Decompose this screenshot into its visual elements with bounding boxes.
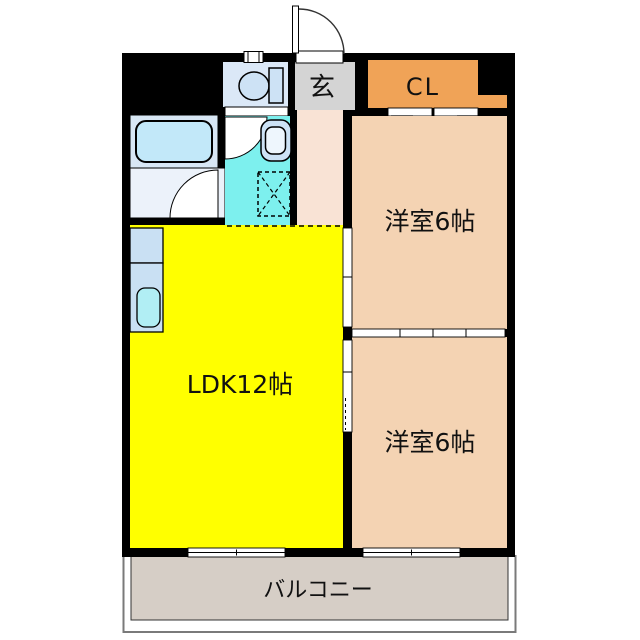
toilet-tank-icon — [269, 68, 283, 103]
balcony-label: バルコニー — [263, 578, 373, 603]
sliding-door-icon — [352, 329, 505, 337]
sliding-door-icon — [343, 340, 352, 432]
entrance-door-swing-arc — [299, 9, 344, 54]
ldk-label: LDK12帖 — [187, 370, 293, 399]
floor-plan-svg: 玄 CL 洋室6帖 洋室6帖 LDK12帖 バルコニー — [0, 0, 640, 640]
bedroom-lower-label: 洋室6帖 — [385, 428, 476, 457]
toilet-icon — [239, 72, 269, 100]
floor-plan: 玄 CL 洋室6帖 洋室6帖 LDK12帖 バルコニー — [0, 0, 640, 640]
closet-label: CL — [406, 73, 440, 101]
genkan-label: 玄 — [309, 73, 335, 103]
closet-folding-door-icon — [434, 108, 478, 116]
hallway — [297, 110, 343, 225]
washbasin-bowl-icon — [266, 127, 286, 154]
bedroom-upper-label: 洋室6帖 — [385, 207, 476, 236]
kitchen-counter-icon — [130, 228, 163, 263]
bathtub-icon — [136, 121, 212, 162]
window-icon — [244, 52, 263, 63]
toilet-door-icon — [225, 107, 288, 116]
entrance-door-icon — [293, 6, 299, 53]
entrance-opening — [296, 51, 343, 63]
kitchen-sink-icon — [137, 288, 160, 327]
closet-folding-door-icon — [388, 108, 432, 116]
